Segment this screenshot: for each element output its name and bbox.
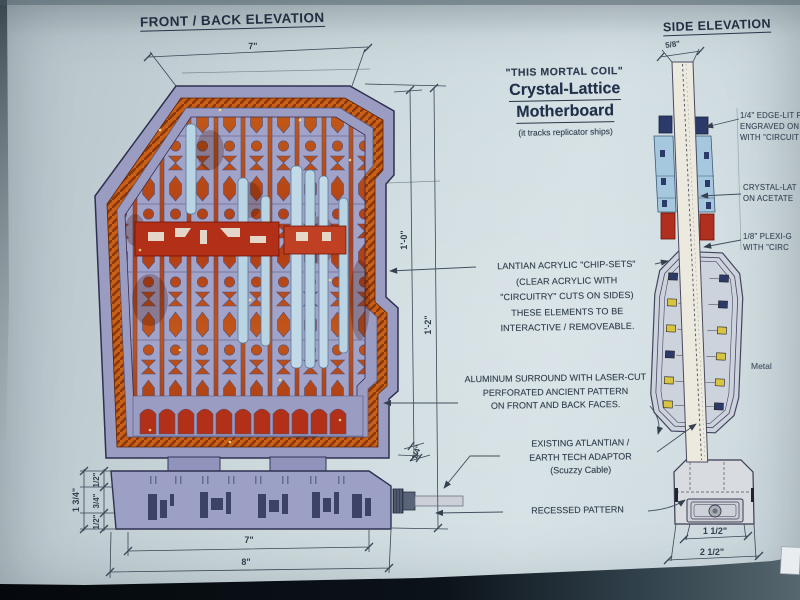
annotation-line: "CIRCUITRY" CUTS ON SIDES) <box>472 287 662 306</box>
paper-tab <box>780 547 800 575</box>
annotation-crystal-lattice: CRYSTAL-LAT ON ACETATE <box>743 182 800 204</box>
annotation-line: ENGRAVED ON <box>740 121 800 132</box>
red-block-right <box>700 214 714 240</box>
dim-base-seg-bot: 1/2" <box>92 514 101 529</box>
dim-adaptor-thickness: 1/4" <box>410 443 424 460</box>
project-name-line2: Motherboard <box>516 102 614 124</box>
episode-title: "THIS MORTAL COIL" <box>469 64 659 79</box>
dim-base-seg-mid: 3/4" <box>92 493 101 508</box>
annotation-line: INTERACTIVE / REMOVEABLE. <box>472 318 662 337</box>
red-block-left <box>661 213 675 239</box>
annotation-line: ON FRONT AND BACK FACES. <box>453 398 658 414</box>
annotation-line: Metal <box>751 361 800 371</box>
project-name-line1: Crystal-Lattice <box>509 80 620 102</box>
annotation-line: CRYSTAL-LAT <box>743 182 800 193</box>
paper-top-edge-shadow <box>0 0 800 5</box>
dim-base-width: 8" <box>241 557 250 567</box>
dim-total-height: 1'-2" <box>423 315 433 334</box>
front-elevation-drawing <box>95 86 463 529</box>
scuzzy-adaptor <box>393 489 463 513</box>
photographed-drawing-sheet: 7" 1'-0" 1'-2" 1 3/4" 1/2" 3/4" 1/2" 1/4… <box>0 0 800 600</box>
annotation-aluminum-surround: ALUMINUM SURROUND WITH LASER-CUT PERFORA… <box>453 371 659 414</box>
red-band <box>135 222 346 256</box>
annotation-plexi: 1/8" PLEXI-G WITH "CIRC <box>743 231 800 253</box>
side-elevation-drawing <box>649 62 754 524</box>
annotation-line: WITH "CIRC <box>743 242 800 253</box>
annotation-chip-sets: LANTIAN ACRYLIC "CHIP-SETS" (CLEAR ACRYL… <box>471 256 662 337</box>
annotation-recessed-pattern: RECESSED PATTERN <box>505 504 650 516</box>
annotation-line: ON ACETATE <box>743 193 800 204</box>
dim-side-recess-width: 1 1/2" <box>703 526 727 536</box>
dim-body-height: 1'-0" <box>399 230 409 249</box>
annotation-line: PERFORATED ANCIENT PATTERN <box>453 384 658 400</box>
annotation-line: RECESSED PATTERN <box>505 504 650 516</box>
paper-left-edge-shadow <box>0 0 9 442</box>
dim-bottom-width: 7" <box>244 535 253 545</box>
annotation-metal: Metal <box>751 361 800 371</box>
dim-side-base-width: 2 1/2" <box>700 547 724 557</box>
dim-base-stack-total: 1 3/4" <box>71 488 81 512</box>
annotation-line: (Scuzzy Cable) <box>498 463 663 479</box>
table-surface <box>0 556 800 600</box>
drawing-canvas: 7" 1'-0" 1'-2" 1 3/4" 1/2" 3/4" 1/2" 1/4… <box>0 0 800 600</box>
dim-front-top-width: 7" <box>248 41 258 51</box>
annotation-line: 1/4" EDGE-LIT P <box>740 110 800 121</box>
annotation-line: LANTIAN ACRYLIC "CHIP-SETS" <box>471 256 661 275</box>
annotation-line: WITH "CIRCUIT <box>740 132 800 143</box>
annotation-line: 1/8" PLEXI-G <box>743 231 800 242</box>
dim-side-top-width: 5/8" <box>665 39 681 50</box>
title-block: "THIS MORTAL COIL" Crystal-Lattice Mothe… <box>469 64 660 138</box>
dim-base-seg-top: 1/2" <box>92 472 101 487</box>
annotation-edge-lit: 1/4" EDGE-LIT P ENGRAVED ON WITH "CIRCUI… <box>740 110 800 143</box>
annotation-adaptor: EXISTING ATLANTIAN / EARTH TECH ADAPTOR … <box>498 436 664 479</box>
